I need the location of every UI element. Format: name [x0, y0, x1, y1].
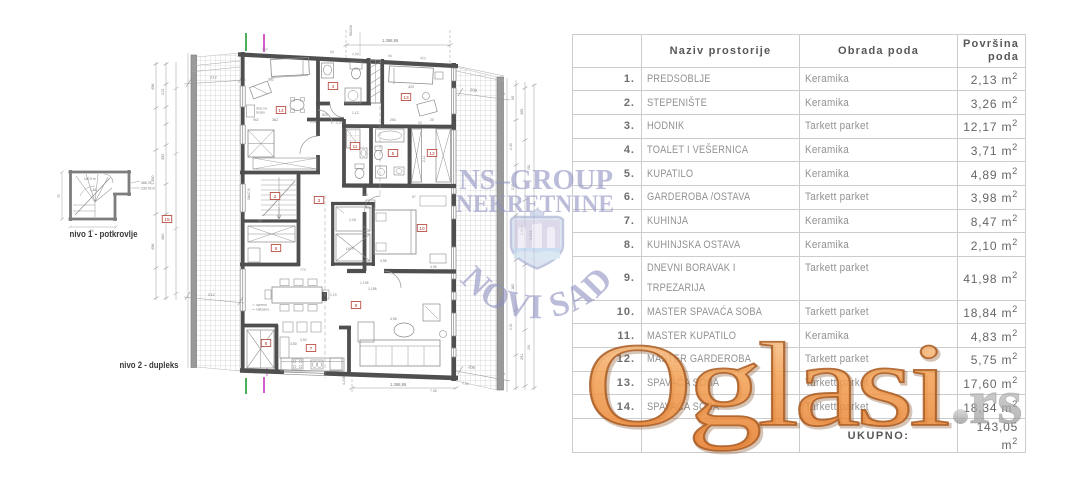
svg-text:2,11: 2,11: [422, 156, 426, 162]
svg-text:nivo 1 - potkrovlje: nivo 1 - potkrovlje: [70, 229, 138, 239]
svg-text:5: 5: [392, 151, 395, 157]
svg-text:oprema: oprema: [256, 303, 267, 307]
svg-text:1,198: 1,198: [360, 281, 369, 285]
svg-text:90: 90: [258, 219, 262, 223]
svg-text:3: 3: [318, 198, 321, 204]
svg-text:67: 67: [412, 195, 416, 199]
svg-text:291: 291: [527, 344, 531, 350]
svg-text:182: 182: [511, 284, 515, 290]
svg-text:212: 212: [161, 89, 165, 95]
svg-text:15: 15: [164, 217, 170, 223]
svg-text:2,08: 2,08: [462, 381, 469, 386]
svg-text:4,96: 4,96: [380, 259, 387, 263]
svg-text:12: 12: [429, 151, 435, 157]
svg-text:66: 66: [388, 54, 392, 58]
svg-text:1,198: 1,198: [368, 287, 377, 291]
svg-text:1.398,86: 1.398,86: [382, 38, 399, 43]
svg-text:LIFT: LIFT: [346, 246, 355, 251]
svg-text:352: 352: [161, 154, 165, 160]
svg-text:1,27: 1,27: [336, 121, 343, 125]
svg-text:16x17,8: 16x17,8: [247, 188, 251, 200]
svg-text:2: 2: [274, 194, 277, 200]
svg-text:140,9 m: 140,9 m: [84, 177, 96, 181]
svg-text:1.023: 1.023: [520, 225, 524, 235]
svg-text:1,19: 1,19: [330, 293, 337, 297]
svg-text:4,96: 4,96: [390, 317, 397, 321]
svg-text:10: 10: [419, 226, 425, 232]
svg-text:6: 6: [275, 246, 278, 252]
svg-text:291: 291: [520, 354, 524, 360]
svg-text:460: 460: [161, 234, 165, 240]
svg-text:9: 9: [355, 303, 358, 309]
svg-text:523: 523: [322, 113, 328, 117]
svg-text:423: 423: [408, 85, 414, 89]
svg-text:4,248: 4,248: [342, 376, 346, 385]
svg-text:90/210: 90/210: [349, 25, 353, 36]
svg-text:13: 13: [403, 95, 409, 101]
svg-text:362: 362: [272, 118, 278, 122]
svg-text:423: 423: [420, 56, 426, 60]
svg-text:3.094: 3.094: [529, 230, 533, 240]
svg-text:4,96: 4,96: [430, 265, 437, 269]
svg-text:3,50: 3,50: [300, 338, 307, 342]
svg-text:962: 962: [262, 47, 268, 51]
svg-text:212: 212: [208, 292, 215, 297]
svg-text:2,00: 2,00: [352, 52, 359, 56]
svg-text:3,50: 3,50: [290, 342, 297, 346]
svg-text:1,48: 1,48: [90, 188, 96, 192]
svg-text:770: 770: [300, 268, 306, 272]
svg-text:210: 210: [511, 184, 515, 190]
svg-text:2,91: 2,91: [509, 323, 513, 330]
svg-text:8: 8: [265, 341, 268, 347]
svg-text:212: 212: [210, 75, 217, 80]
svg-text:90: 90: [511, 96, 515, 100]
svg-text:14: 14: [278, 108, 284, 114]
svg-text:4: 4: [332, 84, 335, 90]
svg-text:2,08: 2,08: [349, 218, 356, 222]
svg-text:2,43: 2,43: [509, 143, 513, 150]
svg-text:7: 7: [310, 346, 313, 352]
svg-text:962: 962: [253, 118, 259, 122]
svg-text:458: 458: [151, 244, 155, 250]
svg-text:1.398,86: 1.398,86: [390, 382, 407, 387]
svg-text:7,08: 7,08: [430, 389, 437, 393]
svg-text:263: 263: [390, 118, 396, 122]
svg-text:11: 11: [353, 144, 358, 150]
svg-text:90: 90: [330, 50, 334, 54]
svg-text:1,12: 1,12: [310, 120, 317, 124]
svg-text:1.350: 1.350: [151, 175, 155, 185]
svg-text:465: 465: [520, 109, 524, 115]
svg-text:458: 458: [151, 84, 155, 90]
svg-text:382: 382: [268, 78, 274, 82]
svg-text:20: 20: [430, 118, 434, 122]
svg-text:20: 20: [418, 121, 422, 125]
svg-text:1,12: 1,12: [352, 111, 359, 115]
svg-text:nivo 2 - dupleks: nivo 2 - dupleks: [120, 360, 179, 370]
svg-text:70: 70: [57, 194, 61, 198]
svg-text:908: 908: [362, 193, 368, 197]
svg-text:281: 281: [527, 164, 531, 170]
svg-text:488,78: 488,78: [141, 181, 151, 185]
svg-text:natkasna: natkasna: [256, 308, 269, 312]
svg-text:terasu: terasu: [256, 111, 265, 115]
svg-text:230,78 m: 230,78 m: [141, 187, 155, 191]
